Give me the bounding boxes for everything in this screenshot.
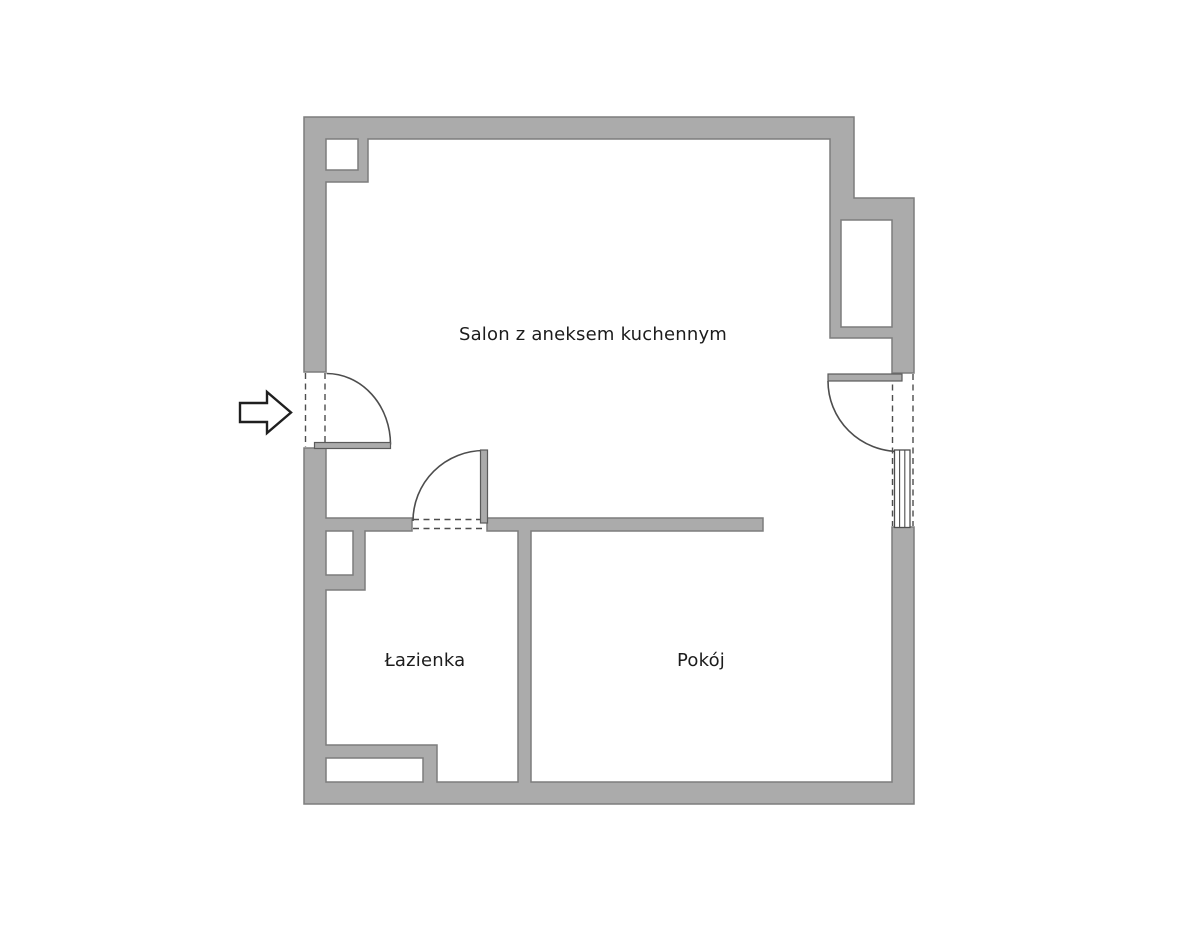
bathroom-door (413, 450, 488, 529)
room-label-salon: Salon z aneksem kuchennym (459, 324, 727, 345)
entrance-arrow-icon (240, 392, 291, 433)
window-symbol (895, 450, 911, 528)
bathroom-door-swing-arc (413, 451, 484, 522)
entrance-door (306, 373, 391, 449)
balcony-door-leaf (828, 374, 902, 381)
floorplan-page: Salon z aneksem kuchennym Łazienka Pokój (0, 0, 1200, 928)
room-label-pokoj: Pokój (677, 650, 725, 671)
floorplan-canvas: Salon z aneksem kuchennym Łazienka Pokój (0, 0, 1200, 928)
walls-lower (304, 448, 914, 804)
balcony-door-swing-arc (828, 381, 899, 452)
entrance-door-swing-arc (327, 374, 391, 445)
entrance-door-leaf (315, 443, 391, 449)
room-label-lazienka: Łazienka (384, 650, 466, 671)
bathroom-door-leaf (481, 450, 488, 523)
window-frame (895, 450, 911, 528)
